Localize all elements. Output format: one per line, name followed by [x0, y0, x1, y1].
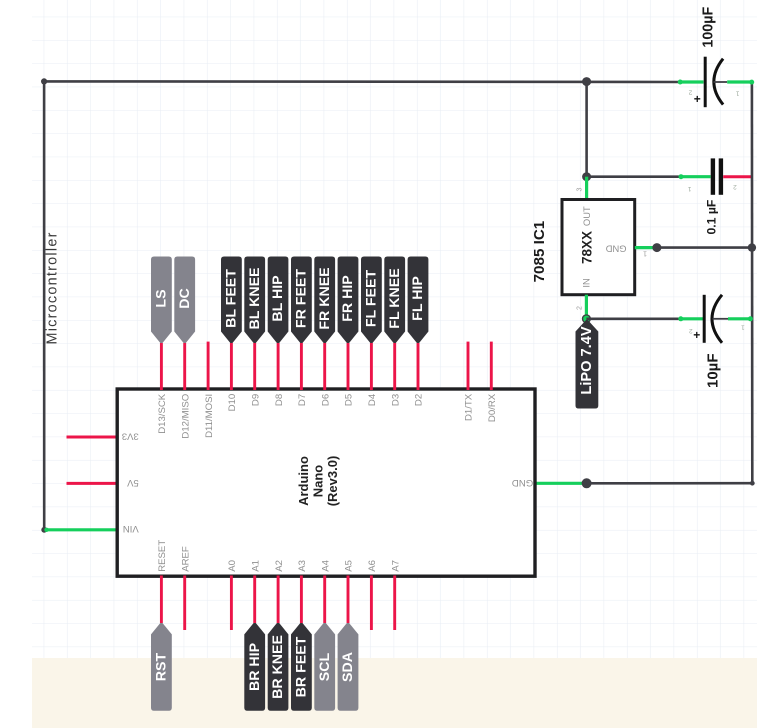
svg-text:D5: D5 — [344, 394, 355, 406]
svg-text:OUT: OUT — [581, 206, 592, 226]
svg-text:+: + — [693, 328, 700, 342]
svg-text:D3: D3 — [390, 394, 401, 406]
svg-text:BL FEET: BL FEET — [224, 269, 240, 328]
svg-text:+: + — [694, 92, 701, 106]
svg-text:2: 2 — [576, 306, 583, 310]
svg-text:2: 2 — [733, 183, 737, 190]
svg-text:FL FEET: FL FEET — [364, 270, 380, 328]
svg-text:3: 3 — [577, 188, 584, 192]
svg-text:FR KNEE: FR KNEE — [317, 267, 333, 329]
svg-text:RST: RST — [154, 652, 170, 681]
svg-text:SCL: SCL — [317, 652, 333, 681]
svg-text:BR FEET: BR FEET — [294, 636, 310, 697]
svg-text:D7: D7 — [297, 394, 308, 406]
svg-text:FL KNEE: FL KNEE — [387, 268, 403, 328]
svg-text:D0/RX: D0/RX — [487, 393, 498, 422]
svg-text:AREF: AREF — [180, 546, 191, 572]
svg-text:BR HIP: BR HIP — [247, 643, 263, 691]
svg-text:D1/TX: D1/TX — [464, 393, 475, 421]
svg-text:7085 IC1: 7085 IC1 — [531, 220, 548, 282]
svg-text:SDA: SDA — [340, 652, 356, 682]
svg-text:D10: D10 — [227, 394, 238, 412]
svg-text:IN: IN — [581, 278, 592, 287]
svg-text:LiPO 7.4V: LiPO 7.4V — [579, 326, 595, 394]
svg-text:BL HIP: BL HIP — [270, 275, 286, 321]
svg-text:FL HIP: FL HIP — [410, 276, 426, 321]
svg-text:A2: A2 — [274, 560, 285, 572]
svg-text:0.1 µF: 0.1 µF — [705, 200, 719, 235]
svg-text:(Rev3.0): (Rev3.0) — [325, 456, 340, 507]
svg-text:Microcontroller: Microcontroller — [44, 231, 60, 344]
svg-text:BR KNEE: BR KNEE — [270, 635, 286, 699]
svg-text:Arduino: Arduino — [296, 456, 311, 506]
svg-text:5V: 5V — [126, 477, 138, 488]
svg-text:A6: A6 — [367, 560, 378, 572]
svg-text:D6: D6 — [320, 394, 331, 406]
svg-text:1: 1 — [688, 185, 692, 192]
svg-text:2: 2 — [688, 89, 692, 96]
svg-text:1: 1 — [643, 250, 647, 257]
svg-text:GND: GND — [512, 477, 533, 488]
svg-text:100µF: 100µF — [701, 7, 717, 48]
svg-text:A5: A5 — [344, 560, 355, 572]
svg-text:D11/MOSI: D11/MOSI — [204, 394, 215, 438]
svg-text:FR FEET: FR FEET — [294, 269, 310, 328]
svg-text:RESET: RESET — [157, 540, 168, 572]
svg-text:3V3: 3V3 — [122, 430, 139, 441]
svg-text:A3: A3 — [297, 560, 308, 572]
svg-text:DC: DC — [177, 288, 193, 309]
svg-text:BL KNEE: BL KNEE — [247, 267, 263, 329]
svg-text:D13/SCK: D13/SCK — [157, 393, 168, 434]
svg-text:FR HIP: FR HIP — [340, 275, 356, 322]
svg-text:GND: GND — [605, 243, 626, 254]
svg-text:1: 1 — [736, 90, 740, 97]
svg-text:A4: A4 — [320, 559, 331, 571]
svg-text:D8: D8 — [274, 394, 285, 406]
svg-text:LS: LS — [154, 289, 170, 307]
svg-text:A7: A7 — [390, 560, 401, 572]
svg-text:78XX: 78XX — [580, 231, 595, 264]
svg-text:1: 1 — [741, 324, 745, 331]
svg-text:A0: A0 — [227, 560, 238, 572]
svg-text:VIN: VIN — [123, 523, 139, 534]
svg-text:A1: A1 — [250, 560, 261, 572]
svg-text:D12/MISO: D12/MISO — [180, 394, 191, 439]
svg-text:D9: D9 — [250, 394, 261, 406]
svg-text:D2: D2 — [414, 394, 425, 406]
svg-text:Nano: Nano — [310, 465, 325, 498]
svg-text:D4: D4 — [367, 393, 378, 406]
svg-text:10µF: 10µF — [704, 354, 721, 389]
svg-text:2: 2 — [689, 327, 693, 334]
